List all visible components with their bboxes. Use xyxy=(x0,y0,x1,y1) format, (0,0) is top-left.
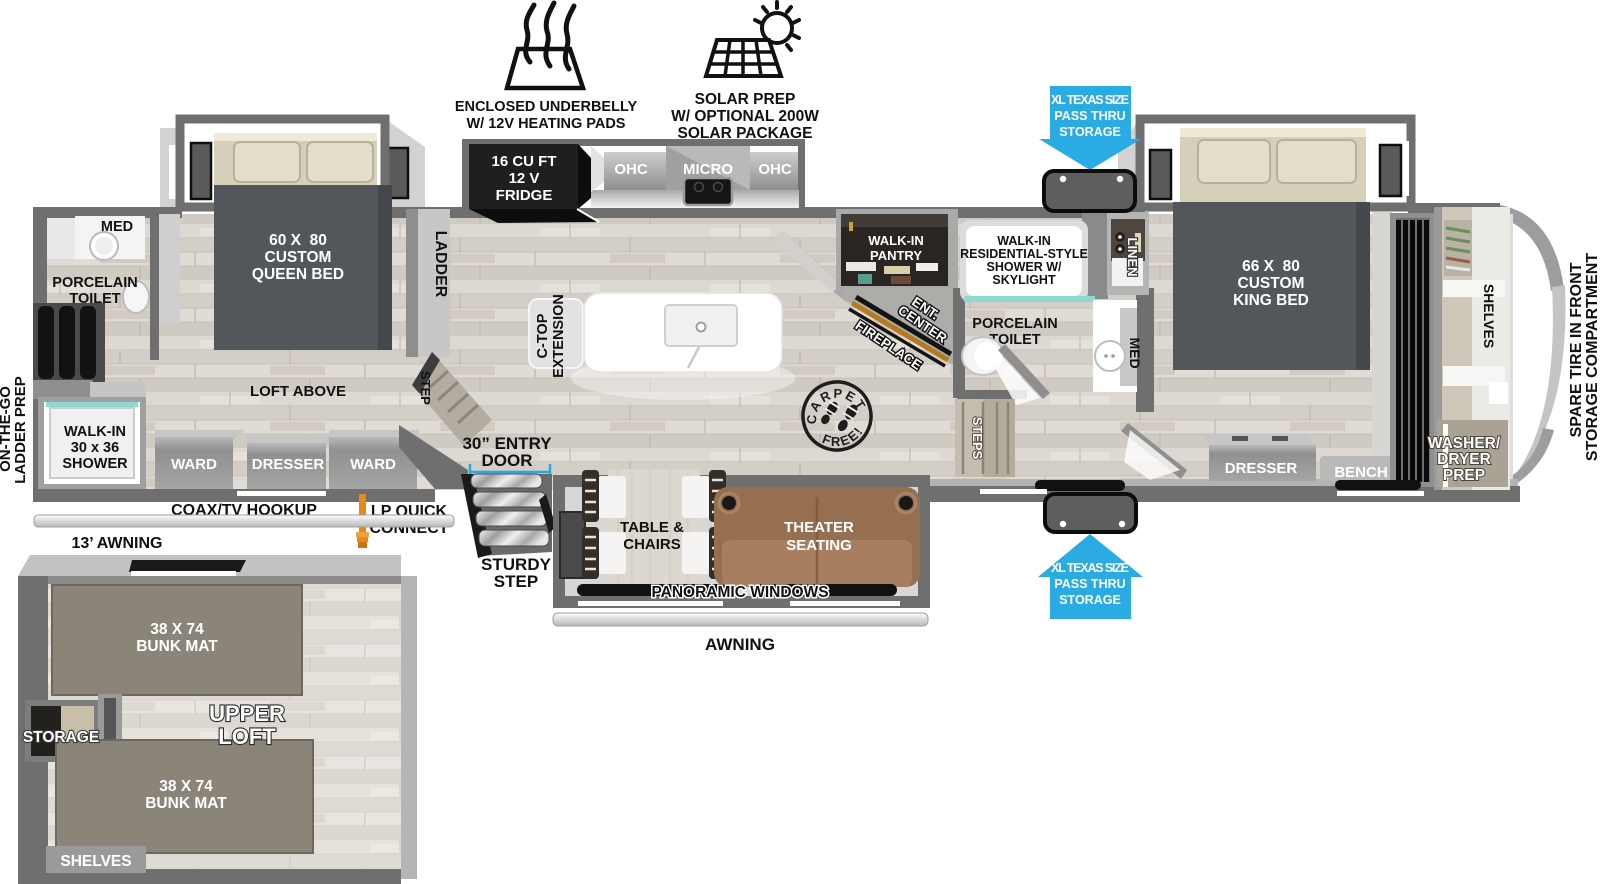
svg-text:AWNING: AWNING xyxy=(705,635,775,654)
svg-text:STEPS: STEPS xyxy=(970,417,985,460)
svg-text:STORAGE: STORAGE xyxy=(23,729,99,746)
svg-text:BUNK MAT: BUNK MAT xyxy=(136,638,218,655)
svg-text:FRIDGE: FRIDGE xyxy=(496,187,553,204)
svg-text:DRESSER: DRESSER xyxy=(1225,460,1298,477)
svg-text:W/ 12V HEATING PADS: W/ 12V HEATING PADS xyxy=(467,116,626,132)
svg-text:LINEN: LINEN xyxy=(1125,238,1140,277)
svg-text:WARD: WARD xyxy=(350,456,396,473)
svg-text:XL TEXAS SIZE: XL TEXAS SIZE xyxy=(1051,561,1129,575)
svg-text:STEP: STEP xyxy=(418,371,433,405)
svg-text:PORCELAIN: PORCELAIN xyxy=(52,275,137,291)
svg-text:STEP: STEP xyxy=(494,572,538,591)
svg-text:W/ OPTIONAL 200W: W/ OPTIONAL 200W xyxy=(671,108,819,125)
svg-text:RESIDENTIAL-STYLE: RESIDENTIAL-STYLE xyxy=(960,247,1088,261)
svg-text:EXTENSION: EXTENSION xyxy=(551,294,567,378)
svg-text:SPARE TIRE IN FRONT: SPARE TIRE IN FRONT xyxy=(1568,262,1585,437)
svg-text:SKYLIGHT: SKYLIGHT xyxy=(992,273,1056,287)
svg-text:SOLAR PREP: SOLAR PREP xyxy=(695,91,796,108)
svg-text:DOOR: DOOR xyxy=(482,451,533,470)
svg-text:TABLE &: TABLE & xyxy=(620,519,684,536)
svg-text:STORAGE: STORAGE xyxy=(1059,593,1121,607)
svg-text:CHAIRS: CHAIRS xyxy=(623,536,681,553)
svg-text:30 x 36: 30 x 36 xyxy=(71,440,119,456)
svg-text:12 V: 12 V xyxy=(509,170,540,187)
svg-text:OHC: OHC xyxy=(614,161,648,178)
svg-text:C-TOP: C-TOP xyxy=(535,313,551,358)
svg-text:SHOWER: SHOWER xyxy=(62,456,128,472)
svg-text:WARD: WARD xyxy=(171,456,217,473)
svg-text:LADDER: LADDER xyxy=(432,231,449,298)
svg-text:38 X 74: 38 X 74 xyxy=(159,778,213,795)
svg-text:LOFT: LOFT xyxy=(218,724,276,749)
svg-text:PANORAMIC WINDOWS: PANORAMIC WINDOWS xyxy=(651,584,828,601)
svg-text:16 CU FT: 16 CU FT xyxy=(491,153,556,170)
svg-text:SHELVES: SHELVES xyxy=(1481,284,1497,348)
svg-text:PREP: PREP xyxy=(1443,467,1485,484)
svg-text:KING BED: KING BED xyxy=(1233,292,1309,309)
svg-text:PORCELAIN: PORCELAIN xyxy=(972,316,1057,332)
svg-text:STORAGE COMPARTMENT: STORAGE COMPARTMENT xyxy=(1584,253,1600,462)
svg-text:WALK-IN: WALK-IN xyxy=(64,424,126,440)
svg-text:13’ AWNING: 13’ AWNING xyxy=(72,535,163,552)
svg-text:CUSTOM: CUSTOM xyxy=(1238,275,1305,292)
svg-text:MED: MED xyxy=(101,219,133,235)
svg-text:ENCLOSED UNDERBELLY: ENCLOSED UNDERBELLY xyxy=(455,99,638,115)
svg-text:SEATING: SEATING xyxy=(786,537,852,554)
svg-text:OHC: OHC xyxy=(758,161,792,178)
svg-text:60 X 80: 60 X 80 xyxy=(269,232,327,249)
svg-text:SHELVES: SHELVES xyxy=(60,853,131,870)
svg-text:PASS THRU: PASS THRU xyxy=(1054,577,1125,591)
svg-text:66 X 80: 66 X 80 xyxy=(1242,258,1300,275)
svg-text:WALK-IN: WALK-IN xyxy=(997,234,1050,248)
svg-text:WASHER/: WASHER/ xyxy=(1428,435,1501,452)
svg-text:BUNK MAT: BUNK MAT xyxy=(145,795,227,812)
svg-text:CUSTOM: CUSTOM xyxy=(265,249,332,266)
svg-text:PANTRY: PANTRY xyxy=(870,248,922,263)
svg-text:QUEEN BED: QUEEN BED xyxy=(252,266,344,283)
svg-text:SHOWER W/: SHOWER W/ xyxy=(987,260,1063,274)
svg-text:DRYER: DRYER xyxy=(1437,451,1491,468)
svg-text:MICRO: MICRO xyxy=(683,161,733,178)
svg-text:DRESSER: DRESSER xyxy=(252,456,325,473)
svg-text:LOFT ABOVE: LOFT ABOVE xyxy=(250,383,346,400)
svg-text:STORAGE: STORAGE xyxy=(1059,125,1121,139)
svg-text:LADDER PREP: LADDER PREP xyxy=(12,376,29,484)
svg-text:MED: MED xyxy=(1127,337,1143,368)
svg-text:WALK-IN: WALK-IN xyxy=(868,233,924,248)
svg-text:THEATER: THEATER xyxy=(784,519,854,536)
svg-text:PASS THRU: PASS THRU xyxy=(1054,109,1125,123)
svg-text:XL TEXAS SIZE: XL TEXAS SIZE xyxy=(1051,93,1129,107)
svg-text:BENCH: BENCH xyxy=(1334,464,1387,481)
svg-text:UPPER: UPPER xyxy=(209,701,285,726)
svg-text:38 X 74: 38 X 74 xyxy=(150,621,204,638)
